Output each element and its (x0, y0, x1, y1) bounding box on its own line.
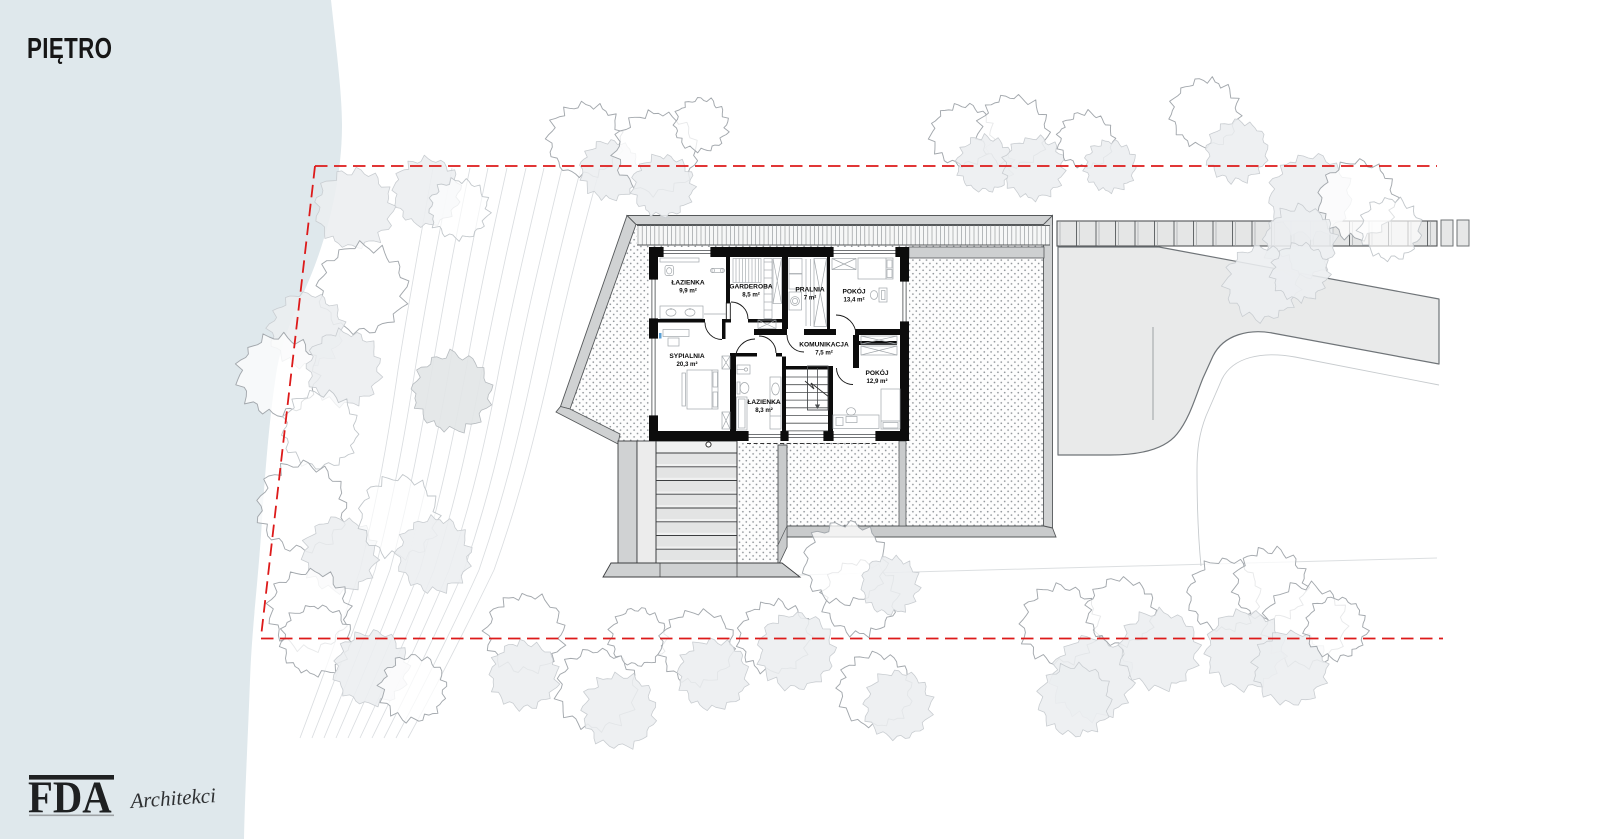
svg-text:SYPIALNIA: SYPIALNIA (669, 353, 704, 360)
svg-text:POKÓJ: POKÓJ (842, 287, 865, 296)
svg-text:8,5 m²: 8,5 m² (742, 292, 760, 299)
svg-text:20,3 m²: 20,3 m² (676, 361, 697, 368)
svg-text:POKÓJ: POKÓJ (865, 368, 888, 377)
svg-text:7 m²: 7 m² (804, 295, 817, 302)
svg-text:KOMUNIKACJA: KOMUNIKACJA (799, 342, 849, 349)
svg-text:PRALNIA: PRALNIA (795, 287, 825, 294)
svg-text:ŁAZIENKA: ŁAZIENKA (747, 399, 781, 406)
svg-text:GARDEROBA: GARDEROBA (729, 284, 772, 291)
svg-text:9,9 m²: 9,9 m² (679, 288, 697, 295)
svg-text:12,9 m²: 12,9 m² (866, 378, 887, 385)
svg-text:ŁAZIENKA: ŁAZIENKA (671, 280, 705, 287)
svg-text:PIĘTRO: PIĘTRO (27, 33, 112, 64)
svg-text:13,4 m²: 13,4 m² (843, 297, 864, 304)
svg-text:7,5 m²: 7,5 m² (815, 350, 833, 357)
svg-text:8,3 m²: 8,3 m² (755, 407, 773, 414)
